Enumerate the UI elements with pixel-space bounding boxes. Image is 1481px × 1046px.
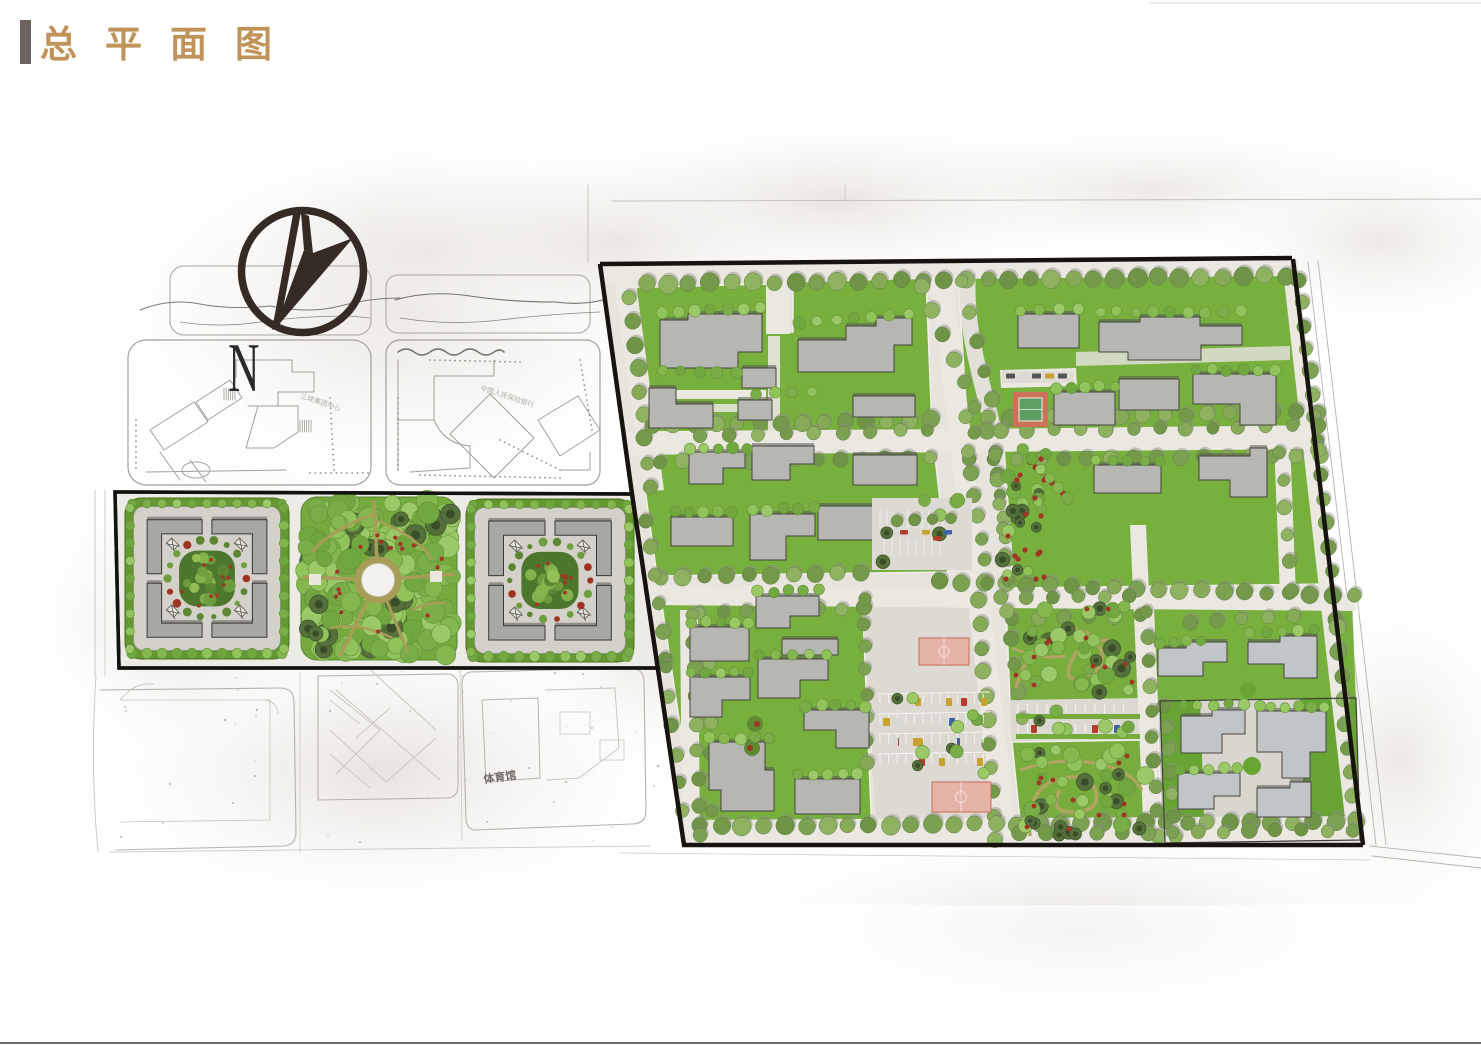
svg-text:N: N — [228, 328, 259, 406]
svg-text:总平面图: 总平面图 — [40, 24, 300, 65]
